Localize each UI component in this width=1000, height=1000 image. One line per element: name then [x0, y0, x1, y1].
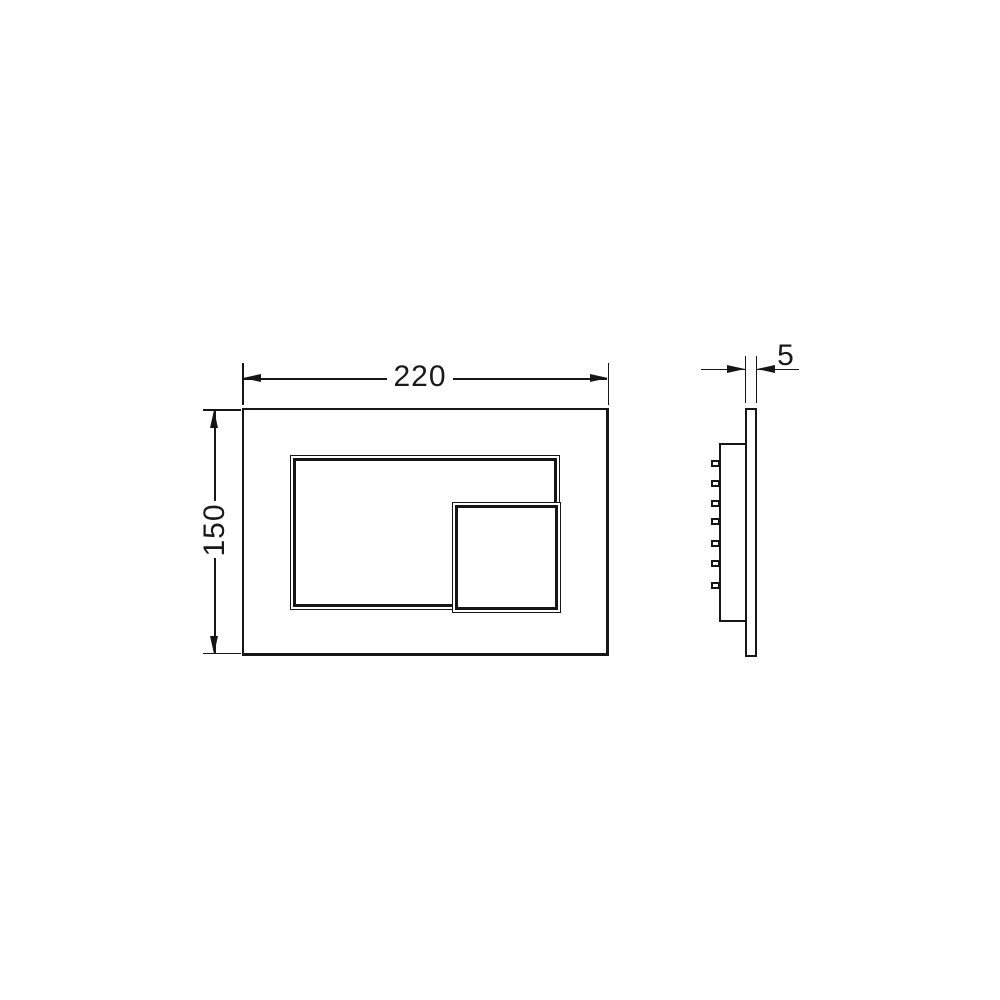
arrowhead-left-icon: [243, 374, 261, 382]
arrowhead-up-icon: [210, 410, 218, 428]
mounting-clip: [711, 582, 720, 589]
height-extension-line-bottom: [203, 653, 241, 655]
thickness-dimension-label: 5: [777, 341, 795, 371]
small-flush-button-inner-line: [455, 505, 558, 610]
width-extension-line-right: [608, 363, 610, 405]
plate-profile-outline: [745, 408, 757, 657]
mounting-clip: [711, 560, 720, 567]
small-flush-button-outline: [452, 502, 561, 613]
mounting-clip: [711, 460, 720, 467]
mounting-clip: [711, 480, 720, 487]
height-dimension-label: 150: [200, 503, 230, 556]
width-extension-line-left: [242, 363, 244, 405]
thickness-extension-line-right: [756, 356, 758, 403]
height-extension-line-top: [203, 409, 241, 411]
arrowhead-down-icon: [210, 636, 218, 654]
thickness-extension-line-left: [745, 356, 747, 403]
drawing-canvas: 220 150 5: [0, 0, 1000, 1000]
arrowhead-inward-right-icon: [727, 365, 745, 373]
mounting-clip: [711, 500, 720, 507]
width-dimension-label: 220: [393, 362, 446, 392]
arrowhead-inward-left-icon: [757, 365, 775, 373]
mounting-clip: [711, 540, 720, 547]
width-dimension-line-left-segment: [244, 378, 387, 380]
arrowhead-right-icon: [590, 374, 608, 382]
mounting-clip: [711, 518, 720, 525]
width-dimension-line-right-segment: [453, 378, 607, 380]
rear-housing-outline: [719, 443, 747, 622]
